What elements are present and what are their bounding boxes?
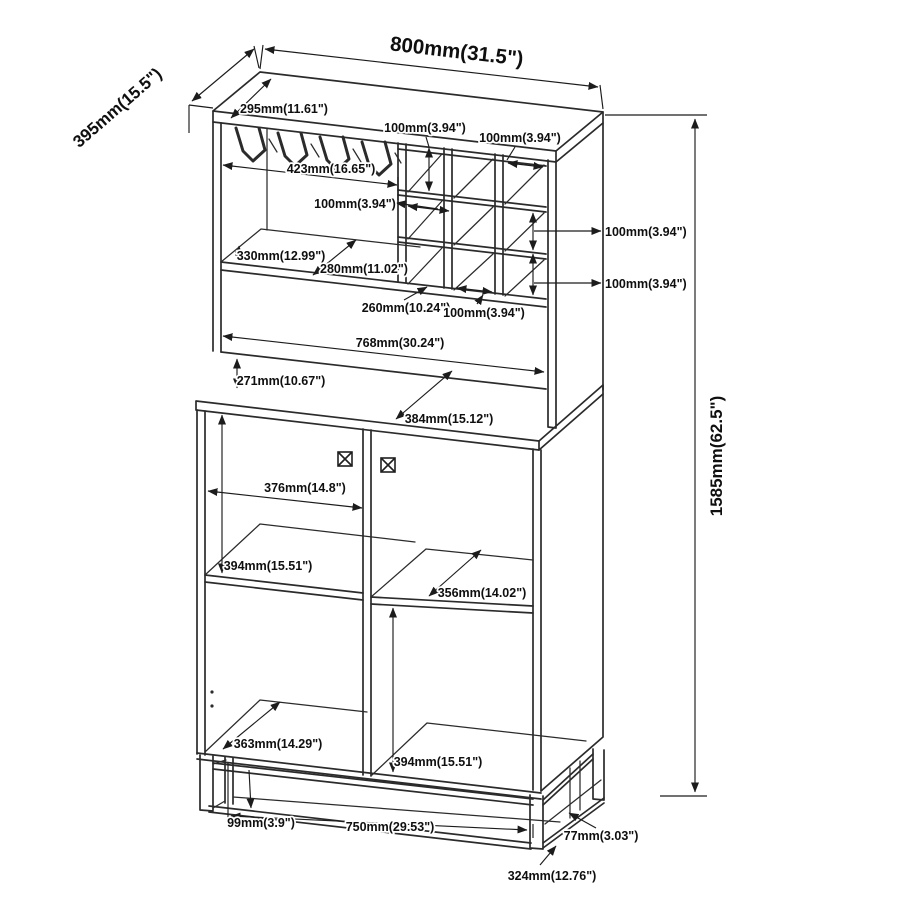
- dim-label-door-opening-width: 376mm(14.8"): [264, 481, 346, 495]
- dim-label-right-shelf-depth: 356mm(14.02"): [438, 586, 527, 600]
- dim-label-base-depth: 324mm(12.76"): [508, 869, 597, 883]
- left-door-knob-icon: [338, 452, 352, 466]
- dim-label-hutch-interior-width: 768mm(30.24"): [356, 336, 445, 350]
- dim-label-right-shelf-spacing: 394mm(15.51"): [394, 755, 483, 769]
- dim-label-cubby-row-height-b: 100mm(3.94"): [605, 277, 687, 291]
- counter-top: [196, 385, 603, 450]
- dim-label-top-inner-depth: 295mm(11.61"): [240, 102, 328, 116]
- dim-label-cubby-depth: 260mm(10.24"): [362, 301, 451, 315]
- dim-label-overall-depth: 395mm(15.5"): [69, 64, 165, 151]
- right-door-knob-icon: [381, 458, 395, 472]
- furniture-dimension-diagram: 395mm(15.5") 800mm(31.5") 1585mm(62.5") …: [0, 0, 900, 900]
- diagram-svg: 395mm(15.5") 800mm(31.5") 1585mm(62.5") …: [0, 0, 900, 900]
- dim-label-glass-rack-width: 423mm(16.65"): [287, 162, 376, 176]
- dim-label-cubby-bottom-width: 100mm(3.94"): [443, 306, 525, 320]
- wine-cubby-grid: [398, 143, 546, 296]
- dim-label-left-shelf-spacing: 394mm(15.51"): [224, 559, 313, 573]
- dim-label-cubby-col-width-b: 100mm(3.94"): [479, 131, 561, 145]
- dim-label-cubby-cell-width: 100mm(3.94"): [314, 197, 396, 211]
- dim-label-hutch-upper-height: 330mm(12.99"): [237, 249, 326, 263]
- dim-label-overall-height: 1585mm(62.5"): [707, 396, 726, 517]
- dim-label-bottom-shelf-depth: 363mm(14.29"): [234, 737, 323, 751]
- door-knobs: [338, 452, 395, 472]
- dim-label-cubby-col-width-a: 100mm(3.94"): [384, 121, 466, 135]
- dim-label-hutch-open-height: 271mm(10.67"): [237, 374, 326, 388]
- dim-label-counter-depth: 384mm(15.12"): [405, 412, 494, 426]
- top-slab: [213, 72, 603, 162]
- dim-label-base-width: 750mm(29.53"): [346, 820, 435, 834]
- dim-label-cubby-row-height-a: 100mm(3.94"): [605, 225, 687, 239]
- dim-label-hutch-shelf-depth: 280mm(11.02"): [320, 262, 408, 276]
- dim-label-base-rail: 77mm(3.03"): [564, 829, 639, 843]
- dim-label-base-height: 99mm(3.9"): [227, 816, 295, 830]
